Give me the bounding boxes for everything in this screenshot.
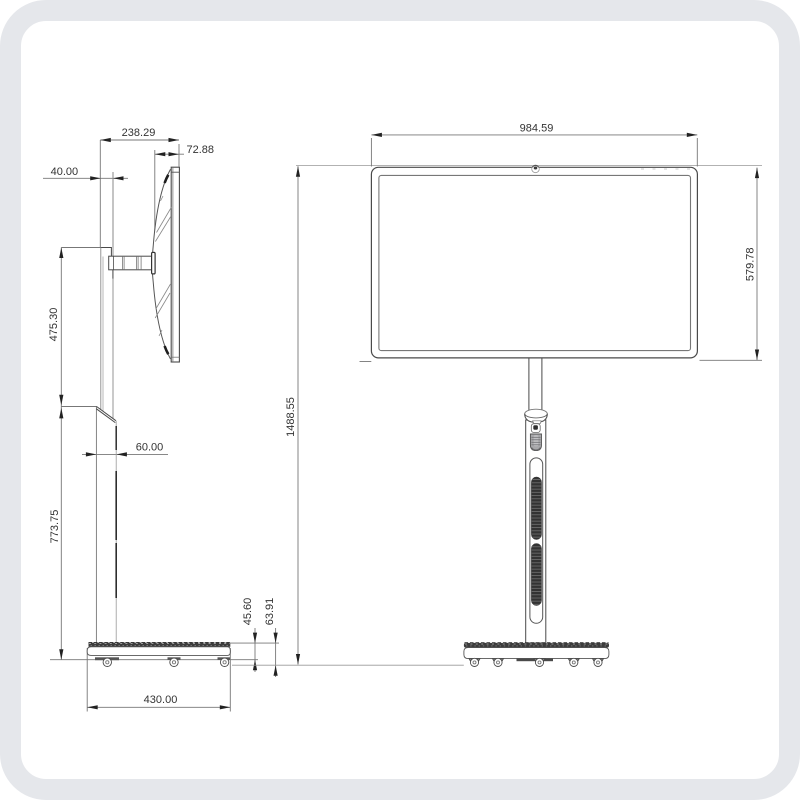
svg-text:72.88: 72.88: [187, 144, 215, 156]
svg-text:1488.55: 1488.55: [285, 397, 297, 437]
svg-text:40.00: 40.00: [51, 166, 79, 178]
svg-text:60.00: 60.00: [136, 442, 164, 454]
svg-text:984.59: 984.59: [520, 123, 554, 135]
svg-text:579.78: 579.78: [745, 247, 757, 281]
svg-text:430.00: 430.00: [144, 694, 178, 706]
svg-text:45.60: 45.60: [242, 598, 254, 626]
svg-text:238.29: 238.29: [122, 127, 156, 139]
svg-text:63.91: 63.91: [264, 598, 276, 626]
svg-text:773.75: 773.75: [49, 510, 61, 544]
svg-text:475.30: 475.30: [48, 308, 60, 342]
